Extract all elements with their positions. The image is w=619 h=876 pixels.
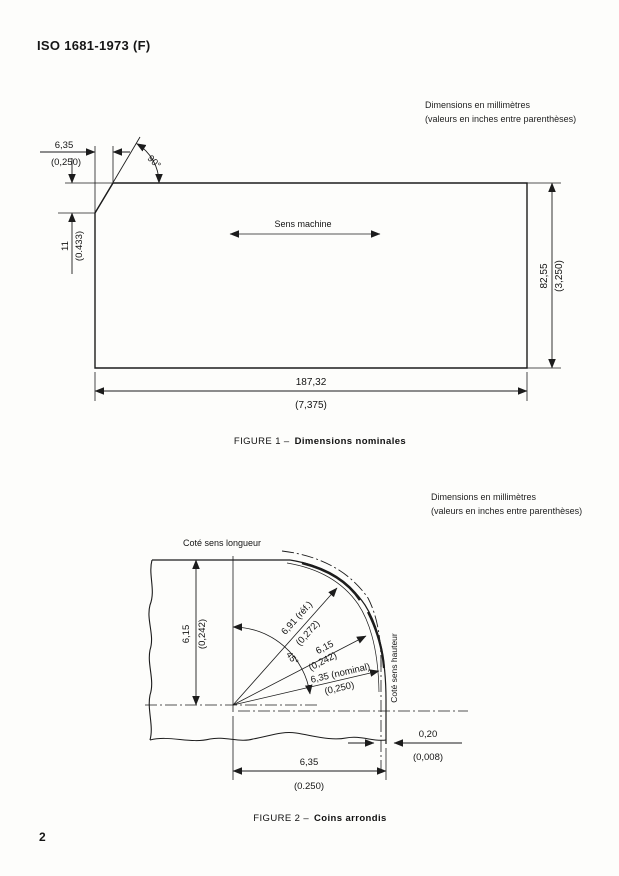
figure1-caption-title: Dimensions nominales — [295, 436, 406, 447]
torn-left-edge — [149, 560, 152, 740]
corner-width-mm: 6,35 — [55, 140, 74, 151]
torn-bottom-edge — [150, 733, 386, 741]
width-in: (7,375) — [295, 400, 327, 411]
corner-height-mm: 11 — [60, 241, 71, 251]
figure1-drawing: 90° 6,35 (0,250) 11 (0.433) Sens machine… — [30, 130, 615, 422]
sheet-outline — [95, 183, 527, 368]
units-note-line2: (valeurs en inches entre parenthèses) — [431, 504, 582, 518]
units-note-line1: Dimensions en millimètres — [425, 98, 576, 112]
units-note-figure1: Dimensions en millimètres (valeurs en in… — [425, 98, 576, 126]
corner-diagonal-line — [95, 137, 140, 213]
corner-height-in: (0.433) — [74, 231, 85, 261]
gap-in: (0,008) — [413, 752, 443, 763]
document-page: ISO 1681-1973 (F) Dimensions en millimèt… — [0, 0, 619, 876]
angle-90-label: 90° — [145, 153, 163, 171]
width-mm: 187,32 — [296, 377, 327, 388]
figure2-caption-label: FIGURE 2 – — [253, 813, 309, 824]
left-dim-mm: 6,15 — [181, 625, 192, 644]
angle-45-label: 45° — [284, 650, 301, 667]
figure2-caption: FIGURE 2 –Coins arrondis — [40, 813, 600, 824]
figure1-caption-label: FIGURE 1 – — [234, 436, 290, 447]
left-dim-in: (0,242) — [197, 619, 208, 649]
page-number: 2 — [39, 830, 46, 844]
height-side-label: Coté sens hauteur — [389, 633, 399, 703]
height-mm: 82,55 — [539, 263, 550, 288]
height-in: (3,250) — [554, 260, 565, 292]
units-note-figure2: Dimensions en millimètres (valeurs en in… — [431, 490, 582, 518]
radius-line-nominal — [233, 671, 379, 705]
actual-corner-curve — [290, 560, 386, 744]
units-note-line1: Dimensions en millimètres — [431, 490, 582, 504]
corner-width-in: (0,250) — [51, 157, 81, 168]
length-side-label: Coté sens longueur — [183, 538, 261, 548]
figure2-caption-title: Coins arrondis — [314, 813, 387, 824]
gap-mm: 0,20 — [419, 729, 438, 740]
machine-direction-label: Sens machine — [274, 219, 331, 229]
corner-width-extension-lines — [95, 146, 113, 213]
figure2-drawing: Coté sens longueur 6,15 (0,242) 45° — [140, 520, 475, 805]
units-note-line2: (valeurs en inches entre parenthèses) — [425, 112, 576, 126]
edge-extension-lines — [65, 183, 561, 368]
bottom-dim-in: (0.250) — [294, 781, 324, 792]
figure1-caption: FIGURE 1 –Dimensions nominales — [40, 436, 600, 447]
bottom-dim-mm: 6,35 — [300, 757, 319, 768]
standard-reference: ISO 1681-1973 (F) — [37, 38, 151, 53]
